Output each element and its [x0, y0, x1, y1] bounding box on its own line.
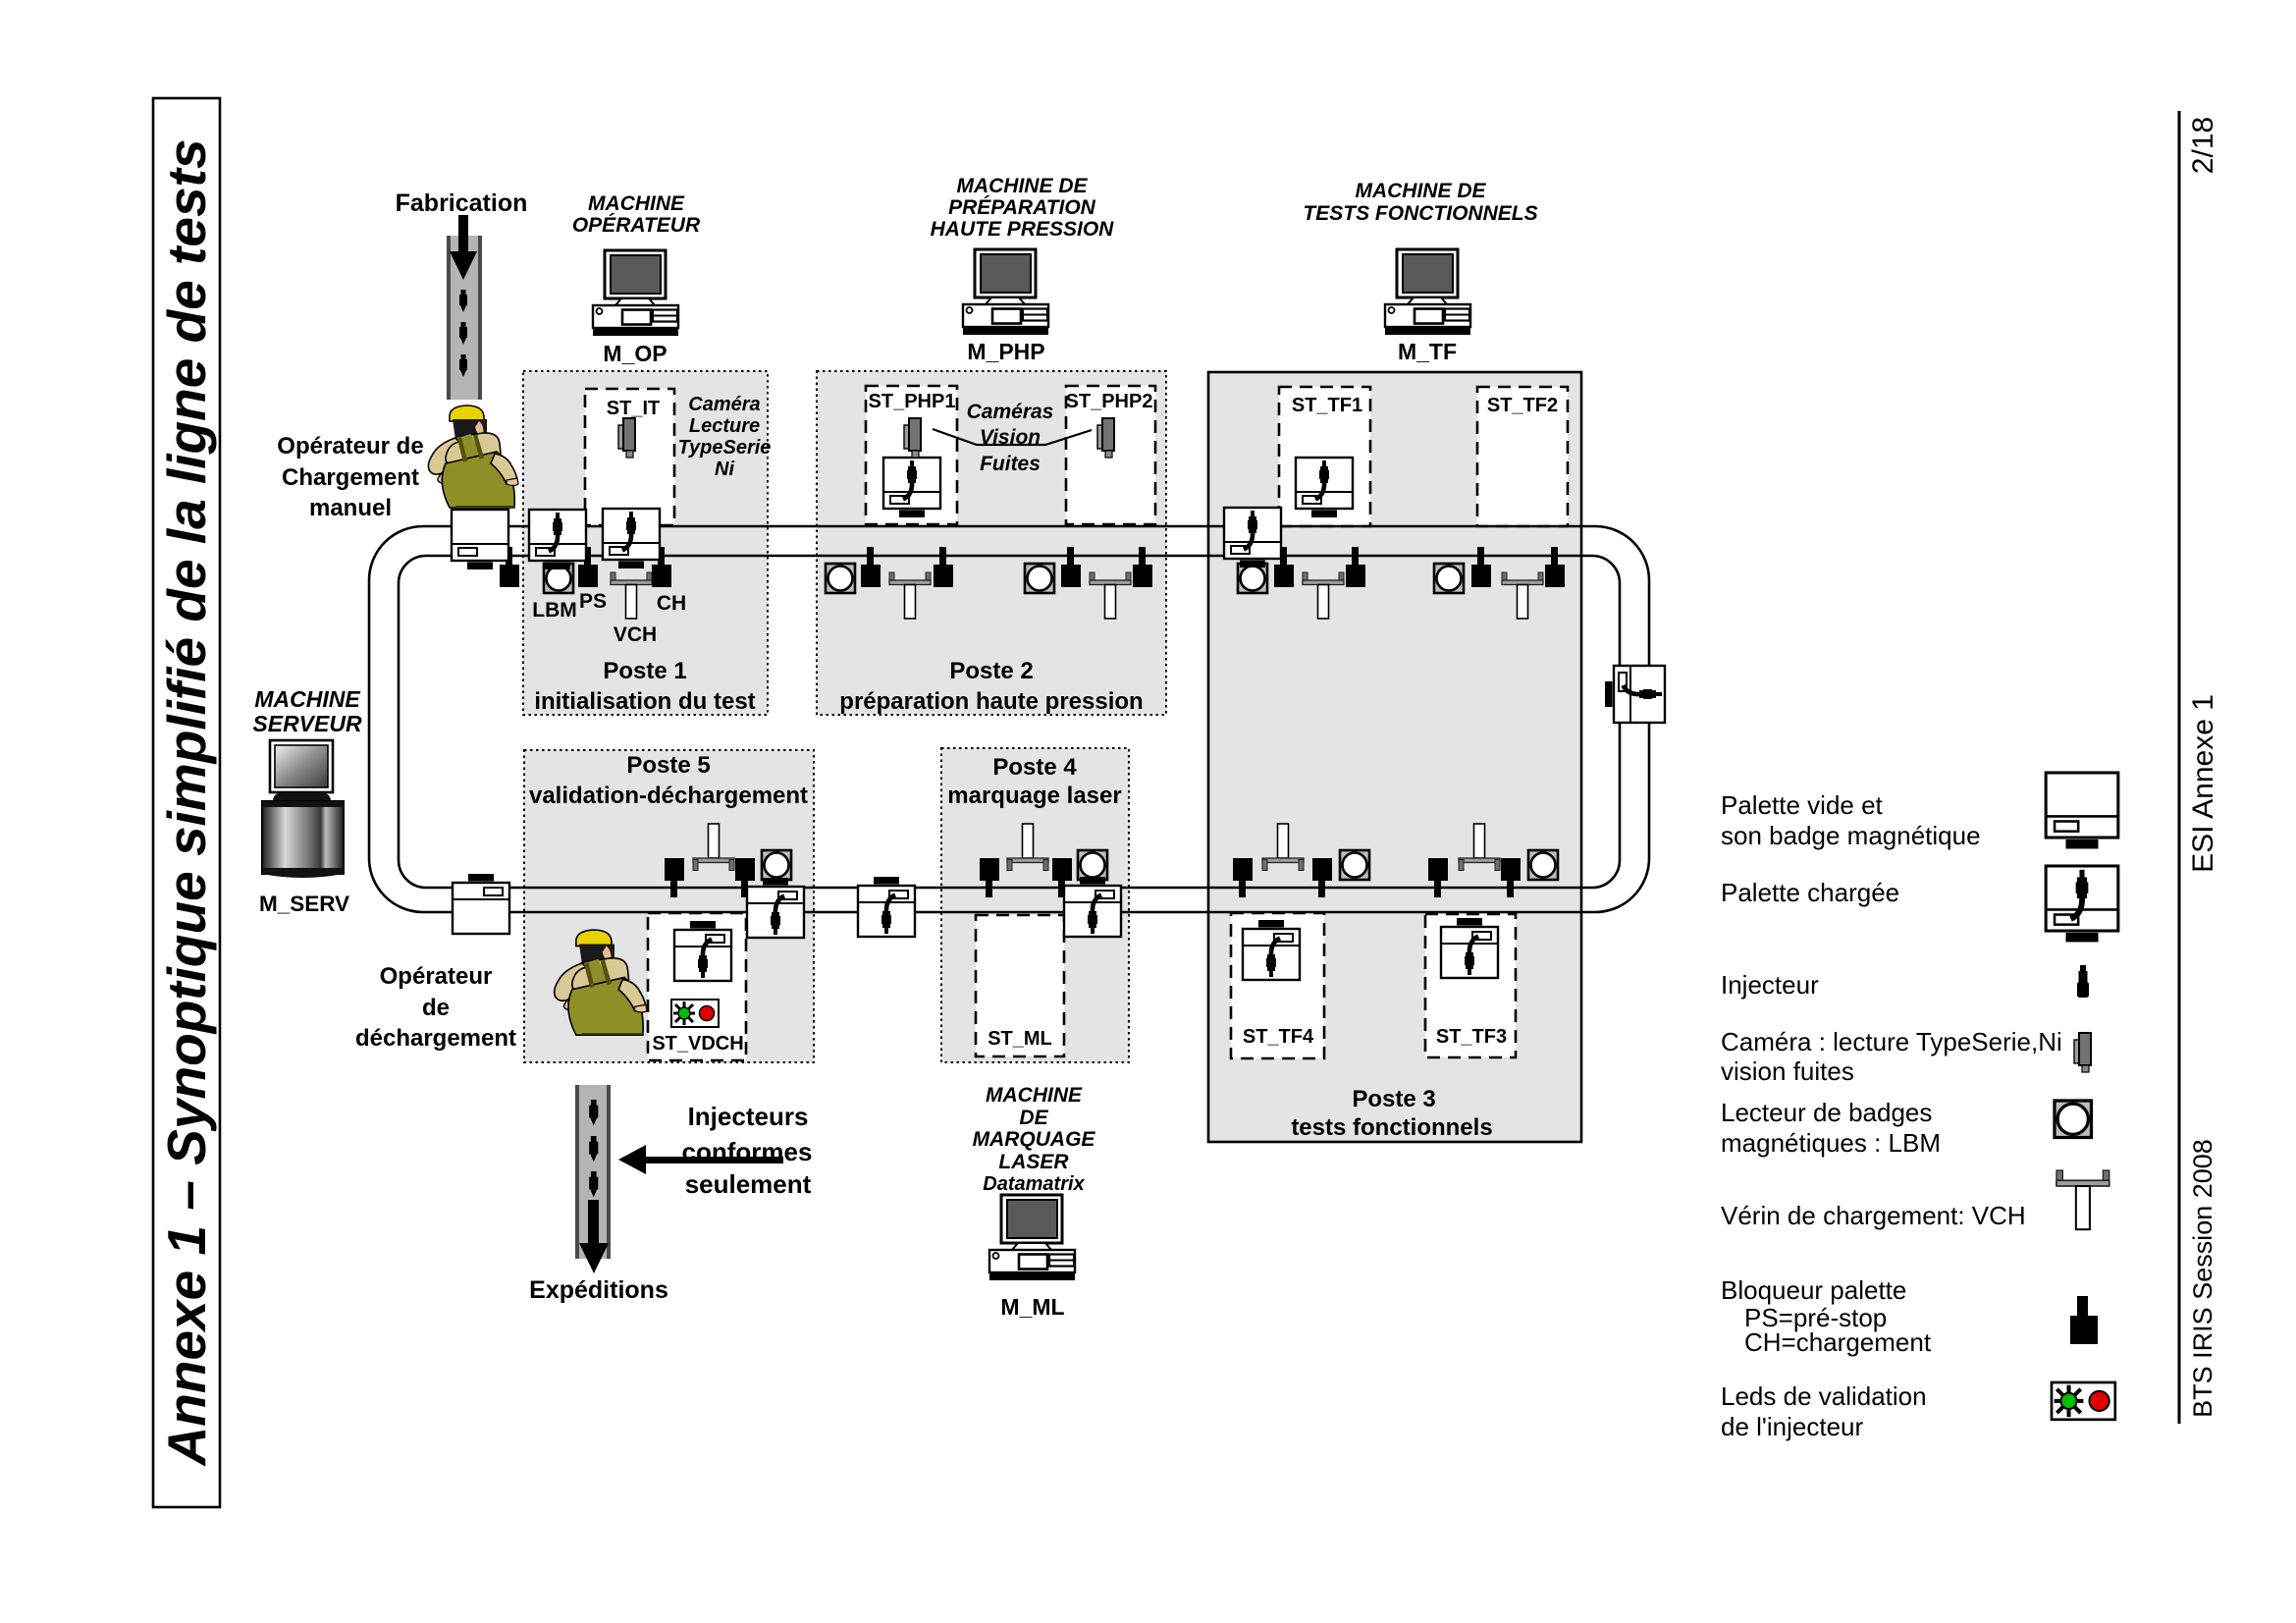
svg-text:Ni: Ni — [715, 459, 734, 480]
svg-text:Vérin de chargement: VCH: Vérin de chargement: VCH — [1721, 1201, 2026, 1230]
svg-text:CH: CH — [657, 592, 686, 615]
svg-text:TESTS FONCTIONNELS: TESTS FONCTIONNELS — [1303, 202, 1537, 225]
svg-text:Poste 4: Poste 4 — [992, 754, 1077, 781]
svg-text:MARQUAGE: MARQUAGE — [973, 1128, 1096, 1151]
svg-text:Palette vide et: Palette vide et — [1721, 790, 1884, 820]
svg-text:M_OP: M_OP — [603, 341, 667, 366]
svg-text:Fuites: Fuites — [980, 453, 1041, 475]
svg-text:Datamatrix: Datamatrix — [983, 1173, 1085, 1195]
svg-text:Poste 3: Poste 3 — [1352, 1086, 1435, 1112]
svg-text:Chargement: Chargement — [282, 464, 419, 491]
svg-text:ST_TF4: ST_TF4 — [1243, 1026, 1314, 1048]
svg-text:Expéditions: Expéditions — [529, 1276, 668, 1304]
svg-text:Lecteur de badges: Lecteur de badges — [1721, 1098, 1932, 1127]
svg-text:M_TF: M_TF — [1398, 339, 1457, 364]
svg-text:Opérateur de: Opérateur de — [277, 433, 423, 460]
svg-text:Bloqueur palette: Bloqueur palette — [1721, 1275, 1906, 1305]
svg-text:tests fonctionnels: tests fonctionnels — [1291, 1114, 1492, 1141]
svg-text:MACHINE: MACHINE — [986, 1084, 1083, 1107]
svg-text:Caméras: Caméras — [967, 401, 1054, 423]
svg-text:ST_PHP1: ST_PHP1 — [869, 391, 956, 412]
svg-text:SERVEUR: SERVEUR — [252, 711, 362, 736]
svg-text:Caméra: Caméra — [688, 394, 760, 415]
svg-text:LASER: LASER — [998, 1151, 1069, 1173]
svg-text:MACHINE DE: MACHINE DE — [1355, 180, 1486, 202]
svg-text:Annexe 1 – Synoptique simplifi: Annexe 1 – Synoptique simplifié de la li… — [156, 139, 217, 1468]
svg-text:manuel: manuel — [309, 495, 392, 521]
svg-text:2/18: 2/18 — [2187, 117, 2219, 174]
svg-text:PRÉPARATION: PRÉPARATION — [948, 196, 1096, 219]
svg-text:de l'injecteur: de l'injecteur — [1721, 1412, 1864, 1441]
svg-text:LBM: LBM — [532, 599, 577, 622]
svg-text:Fabrication: Fabrication — [396, 189, 528, 217]
svg-text:M_SERV: M_SERV — [259, 892, 349, 916]
svg-text:ST_ML: ST_ML — [988, 1028, 1052, 1050]
svg-text:validation-déchargement: validation-déchargement — [529, 783, 808, 809]
svg-text:de: de — [422, 995, 450, 1021]
svg-text:ST_TF1: ST_TF1 — [1292, 395, 1362, 416]
svg-text:PS: PS — [579, 590, 607, 613]
svg-text:Poste 1: Poste 1 — [603, 658, 686, 684]
svg-text:VCH: VCH — [614, 623, 657, 646]
svg-text:DE: DE — [1019, 1107, 1048, 1129]
svg-text:vision fuites: vision fuites — [1721, 1056, 1854, 1086]
svg-text:Opérateur: Opérateur — [380, 963, 493, 990]
svg-text:son badge magnétique: son badge magnétique — [1721, 821, 1981, 850]
svg-text:marquage laser: marquage laser — [947, 783, 1121, 809]
svg-text:M_PHP: M_PHP — [967, 339, 1044, 364]
svg-text:Lecture: Lecture — [689, 415, 760, 437]
svg-text:seulement: seulement — [685, 1169, 812, 1199]
svg-text:BTS IRIS Session 2008: BTS IRIS Session 2008 — [2188, 1139, 2217, 1418]
svg-text:Caméra : lecture TypeSerie,Ni: Caméra : lecture TypeSerie,Ni — [1721, 1027, 2062, 1056]
svg-text:ST_TF2: ST_TF2 — [1487, 395, 1558, 416]
svg-text:MACHINE DE: MACHINE DE — [956, 175, 1088, 197]
svg-text:déchargement: déchargement — [355, 1025, 516, 1052]
svg-text:initialisation du test: initialisation du test — [534, 688, 755, 715]
svg-text:ST_IT: ST_IT — [607, 398, 660, 419]
svg-text:préparation haute pression: préparation haute pression — [839, 688, 1143, 715]
svg-text:ST_VDCH: ST_VDCH — [652, 1033, 743, 1055]
svg-text:Poste 2: Poste 2 — [949, 658, 1033, 684]
svg-text:HAUTE PRESSION: HAUTE PRESSION — [931, 218, 1115, 241]
svg-text:Vision: Vision — [980, 426, 1041, 449]
svg-text:Poste 5: Poste 5 — [626, 752, 710, 779]
svg-text:OPÉRATEUR: OPÉRATEUR — [572, 214, 701, 237]
svg-text:ESI Annexe 1: ESI Annexe 1 — [2187, 694, 2219, 873]
svg-text:MACHINE: MACHINE — [588, 192, 685, 215]
svg-text:TypeSerie: TypeSerie — [678, 437, 772, 459]
svg-text:Injecteur: Injecteur — [1721, 970, 1819, 1000]
svg-text:CH=chargement: CH=chargement — [1744, 1327, 1932, 1357]
svg-text:Injecteurs: Injecteurs — [688, 1102, 809, 1131]
svg-text:MACHINE: MACHINE — [254, 686, 360, 712]
svg-text:conformes: conformes — [682, 1137, 813, 1166]
svg-text:ST_TF3: ST_TF3 — [1436, 1026, 1507, 1048]
svg-text:Palette chargée: Palette chargée — [1721, 878, 1899, 907]
svg-text:ST_PHP2: ST_PHP2 — [1066, 391, 1153, 412]
svg-text:Leds de validation: Leds de validation — [1721, 1381, 1927, 1411]
svg-text:magnétiques : LBM: magnétiques : LBM — [1721, 1128, 1941, 1158]
svg-text:M_ML: M_ML — [1000, 1294, 1064, 1320]
